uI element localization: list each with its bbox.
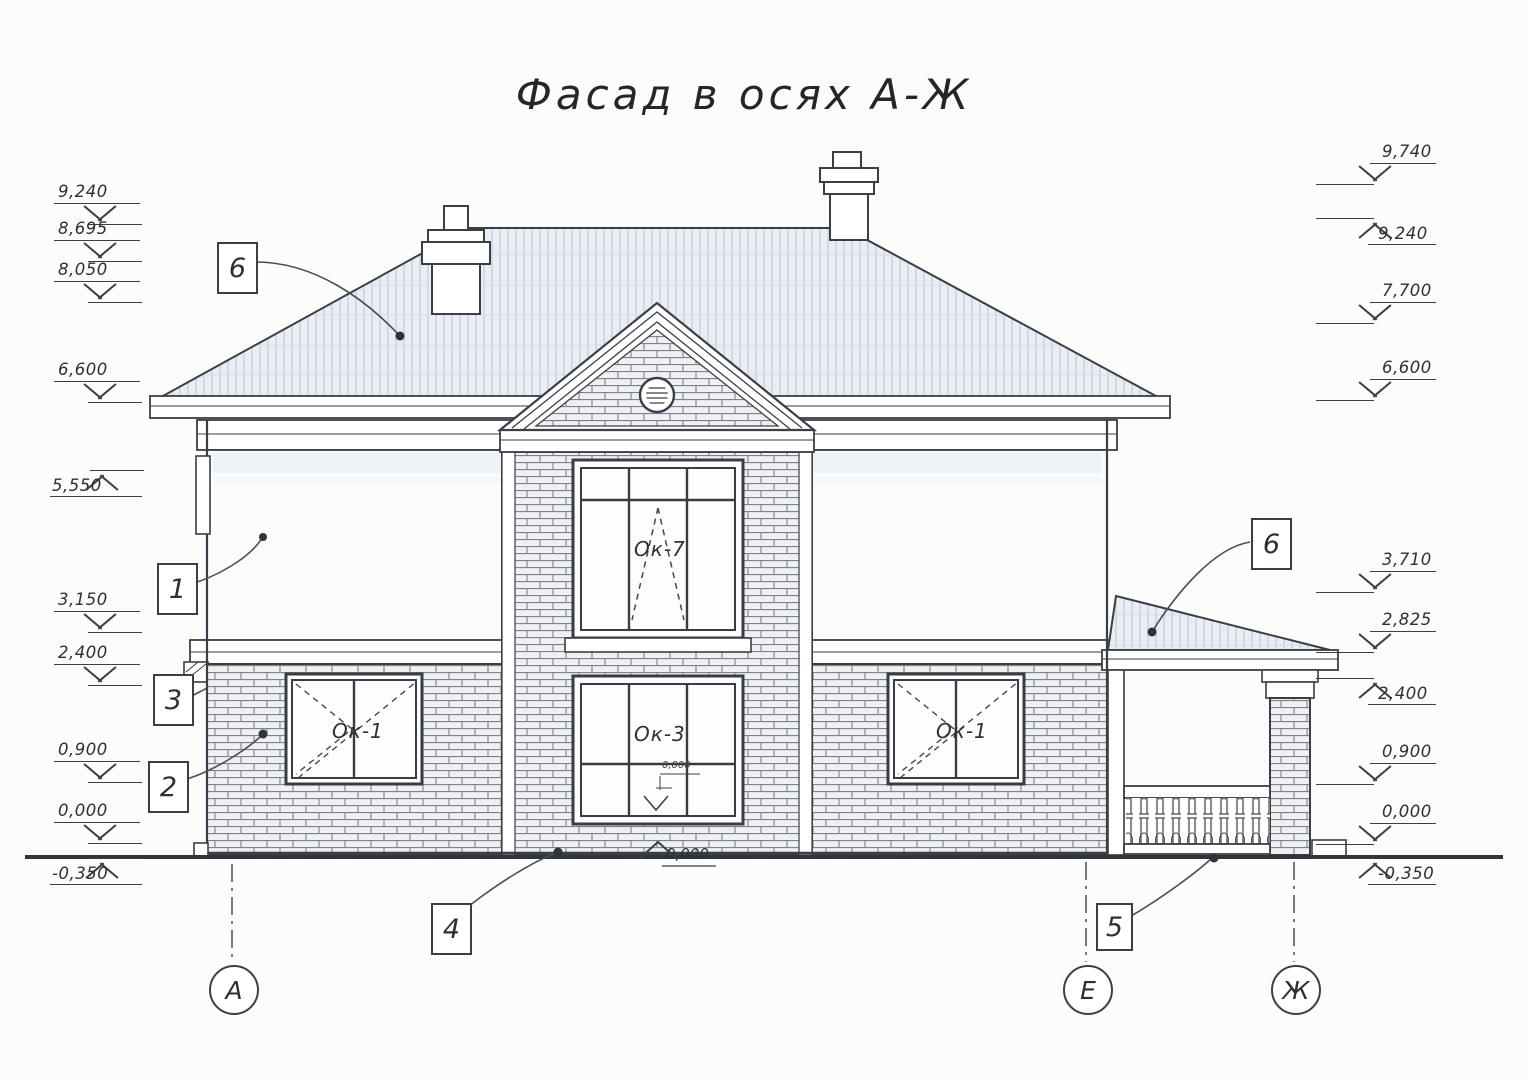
axis-bubble-a: А [209, 965, 259, 1015]
axis-lines [232, 862, 1294, 962]
callout-6-porch-roof: 6 [1251, 518, 1292, 570]
level-arrow-icon [1359, 165, 1391, 184]
elevation-mark-right-7700: 7,700 [1336, 283, 1436, 355]
level-arrow-icon [84, 242, 116, 261]
level-arrow-icon [84, 666, 116, 685]
axis-bubble-e: Е [1063, 965, 1113, 1015]
level-arrow-icon [84, 283, 116, 302]
window-label-ok3: Ок-3 [634, 722, 686, 746]
sill-level-text: 0,000 [662, 760, 691, 771]
elevation-mark-right-6600: 6,600 [1336, 360, 1436, 432]
elevation-mark-right-2400: 2,400 [1336, 678, 1436, 750]
window-label-ok1-left: Ок-1 [332, 719, 384, 743]
level-arrow-icon [1359, 825, 1391, 844]
callout-3-belt: 3 [153, 674, 194, 726]
elevation-mark-right-minus0350: -0,350 [1336, 858, 1436, 930]
level-arrow-icon [84, 824, 116, 843]
elevation-mark-left-minus0350: -0,350 [52, 858, 152, 930]
facade-linework [0, 0, 1528, 1080]
elevation-mark-right-2825: 2,825 [1336, 612, 1436, 684]
level-arrow-icon [1359, 633, 1391, 652]
axis-bubble-zh: Ж [1271, 965, 1321, 1015]
elevation-mark-left-2400: 2,400 [52, 645, 152, 717]
balustrade [1126, 798, 1270, 846]
callout-5-porch: 5 [1096, 903, 1133, 951]
callout-2-wall-lower: 2 [148, 761, 189, 813]
callout-1-wall-upper: 1 [157, 563, 198, 615]
elevation-mark-left-6600: 6,600 [52, 362, 152, 434]
level-arrow-icon [1359, 304, 1391, 323]
porch [1102, 596, 1346, 856]
drawing-title: Фасад в осях А-Ж [0, 72, 1488, 118]
window-label-ok1-right: Ок-1 [936, 719, 988, 743]
porch-roof [1108, 596, 1330, 650]
base-level-text: 0,000 [666, 845, 709, 863]
elevation-mark-right-9240: 9,240 [1336, 218, 1436, 290]
level-arrow-icon [84, 763, 116, 782]
level-arrow-icon [84, 613, 116, 632]
level-arrow-icon [84, 383, 116, 402]
elevation-mark-left-8050: 8,050 [52, 262, 152, 334]
level-arrow-icon [1359, 573, 1391, 592]
level-arrow-icon [1359, 765, 1391, 784]
window-ok3 [573, 676, 743, 824]
elevation-mark-right-9740: 9,740 [1336, 144, 1436, 216]
elevation-mark-left-5550: 5,550 [52, 470, 152, 542]
facade-drawing-sheet: Фасад в осях А-Ж 9,240 8,695 8,050 6,600… [0, 0, 1528, 1080]
round-vent-icon [640, 378, 674, 412]
callout-6-roof: 6 [217, 242, 258, 294]
chimney-right [820, 152, 878, 240]
porch-pillar [1270, 698, 1310, 855]
window-label-ok7: Ок-7 [634, 537, 686, 561]
chimney-left [422, 206, 490, 314]
callout-4-base: 4 [431, 903, 472, 955]
level-arrow-icon [1359, 381, 1391, 400]
